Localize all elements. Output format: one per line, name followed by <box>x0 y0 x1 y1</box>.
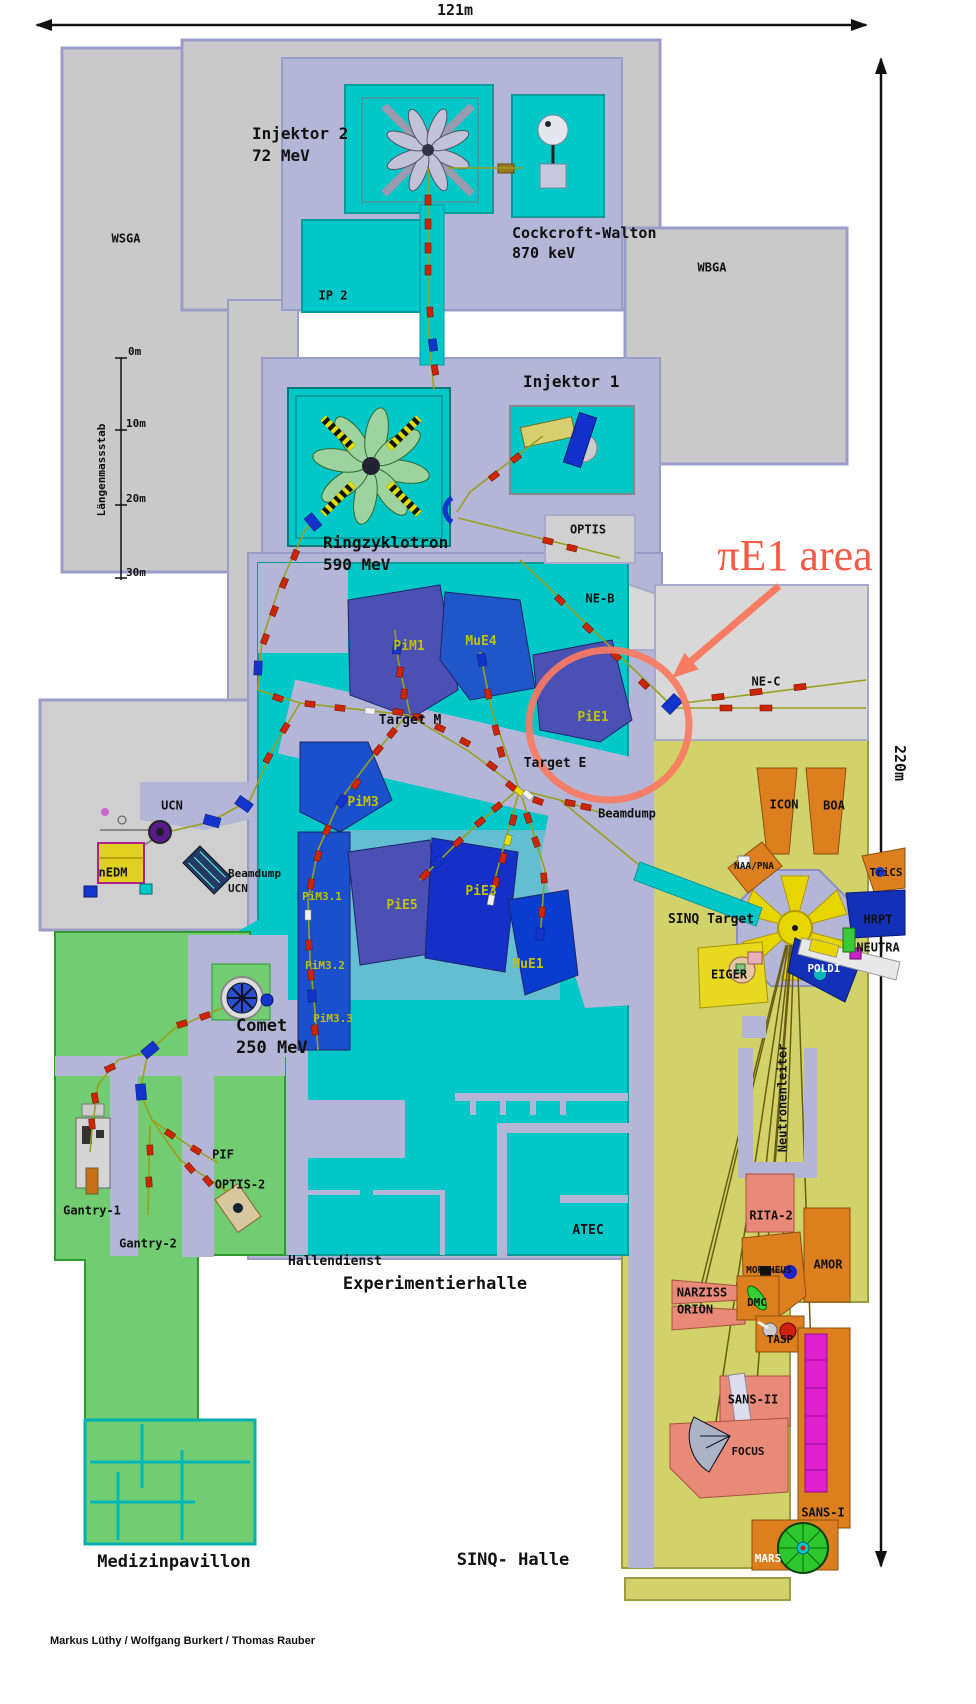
label-nedm: nEDM <box>99 867 128 880</box>
label-ne-c: NE-C <box>752 676 781 689</box>
label-pim3-3: PiM3.3 <box>313 1013 353 1025</box>
label-target-m: Target M <box>379 714 442 728</box>
label-dmc: DMC <box>747 1297 767 1309</box>
ruler-tick-20m: 20m <box>126 493 146 505</box>
label-sans1: SANS-I <box>801 1507 844 1520</box>
label-wsga: WSGA <box>112 233 141 246</box>
label-ringzyklotron-energy: 590 MeV <box>323 557 390 574</box>
label-wbga: WBGA <box>698 262 727 275</box>
label-injektor1: Injektor 1 <box>523 374 619 391</box>
label-beamdump: Beamdump <box>598 808 656 821</box>
label-orion: ORION <box>677 1304 713 1317</box>
label-pie3: PiE3 <box>465 885 496 899</box>
label-hallendienst: Hallendienst <box>288 1255 382 1269</box>
credits-line: Markus Lüthy / Wolfgang Burkert / Thomas… <box>50 1636 315 1648</box>
label-ne-b: NE-B <box>586 593 615 606</box>
label-morpheus: MORPHEUS <box>746 1266 792 1276</box>
ruler-tick-10m: 10m <box>126 418 146 430</box>
sinq-hall-annex <box>625 1578 790 1600</box>
label-pim3-2: PiM3.2 <box>305 960 345 972</box>
label-sinq-halle: SINQ- Halle <box>457 1552 570 1570</box>
label-comet-energy: 250 MeV <box>236 1040 308 1058</box>
label-laengenmassstab: Längenmassstab <box>96 424 108 517</box>
label-pie5: PiE5 <box>386 899 417 913</box>
label-ucn: UCN <box>161 800 183 813</box>
label-trics: TriCS <box>869 867 902 879</box>
ruler-tick-30m: 30m <box>126 567 146 579</box>
label-rita2: RITA-2 <box>749 1210 792 1223</box>
label-neutronenleiter: Neutronenleiter <box>777 1044 790 1152</box>
label-narziss: NARZISS <box>677 1287 728 1300</box>
label-experimentierhalle: Experimentierhalle <box>343 1276 527 1294</box>
label-cockcroft-energy: 870 keV <box>512 246 575 262</box>
label-hrpt: HRPT <box>864 914 893 927</box>
label-injektor2-energy: 72 MeV <box>252 148 310 165</box>
medizinpavillon-building <box>85 1420 255 1544</box>
label-pim1: PiM1 <box>393 640 424 654</box>
width-ruler <box>35 19 868 31</box>
label-ip2: IP 2 <box>319 290 348 303</box>
label-beamdump-ucn-2: UCN <box>228 883 248 895</box>
label-icon: ICON <box>770 799 799 812</box>
label-pie1: PiE1 <box>577 711 608 725</box>
facility-map: 121m 220m Injektor 2 72 MeV Cockcroft-Wa… <box>0 0 976 1704</box>
label-cockcroft: Cockcroft-Walton <box>512 226 657 242</box>
label-optis: OPTIS <box>570 524 606 537</box>
label-optis2: OPTIS-2 <box>215 1179 266 1192</box>
height-dimension-label: 220m <box>891 745 907 781</box>
label-poldi: POLDI <box>807 963 840 975</box>
label-target-e: Target E <box>524 757 587 771</box>
width-dimension-label: 121m <box>437 3 473 19</box>
label-mue4: MuE4 <box>465 635 496 649</box>
label-pie1-area-annotation: πE1 area <box>717 533 872 579</box>
height-ruler <box>875 57 887 1568</box>
label-ringzyklotron: Ringzyklotron <box>323 535 448 552</box>
label-beamdump-ucn-1: Beamdump <box>228 868 281 880</box>
label-injektor2: Injektor 2 <box>252 126 348 143</box>
label-atec: ATEC <box>572 1224 603 1238</box>
label-gantry1: Gantry-1 <box>63 1205 121 1218</box>
label-naa-pna: NAA/PNA <box>734 862 774 872</box>
label-mue1: MuE1 <box>512 958 543 972</box>
label-medizinpavillon: Medizinpavillon <box>97 1554 251 1572</box>
label-sinq-target: SINQ Target <box>668 913 754 927</box>
label-gantry2: Gantry-2 <box>119 1238 177 1251</box>
label-sans2: SANS-II <box>728 1394 779 1407</box>
label-comet: Comet <box>236 1018 287 1036</box>
facility-map-graphics <box>0 0 976 1704</box>
ring-cyclotron <box>311 406 431 526</box>
label-tasp: TASP <box>767 1334 794 1346</box>
label-focus: FOCUS <box>731 1446 764 1458</box>
ruler-tick-0m: 0m <box>128 346 141 358</box>
label-boa: BOA <box>823 800 845 813</box>
label-amor: AMOR <box>814 1259 843 1272</box>
label-pim3: PiM3 <box>347 796 378 810</box>
label-mars: MARS <box>755 1553 782 1565</box>
label-neutra: NEUTRA <box>856 942 899 955</box>
label-pim3-1: PiM3.1 <box>302 891 342 903</box>
label-pif: PIF <box>212 1149 234 1162</box>
label-eiger: EIGER <box>711 969 747 982</box>
